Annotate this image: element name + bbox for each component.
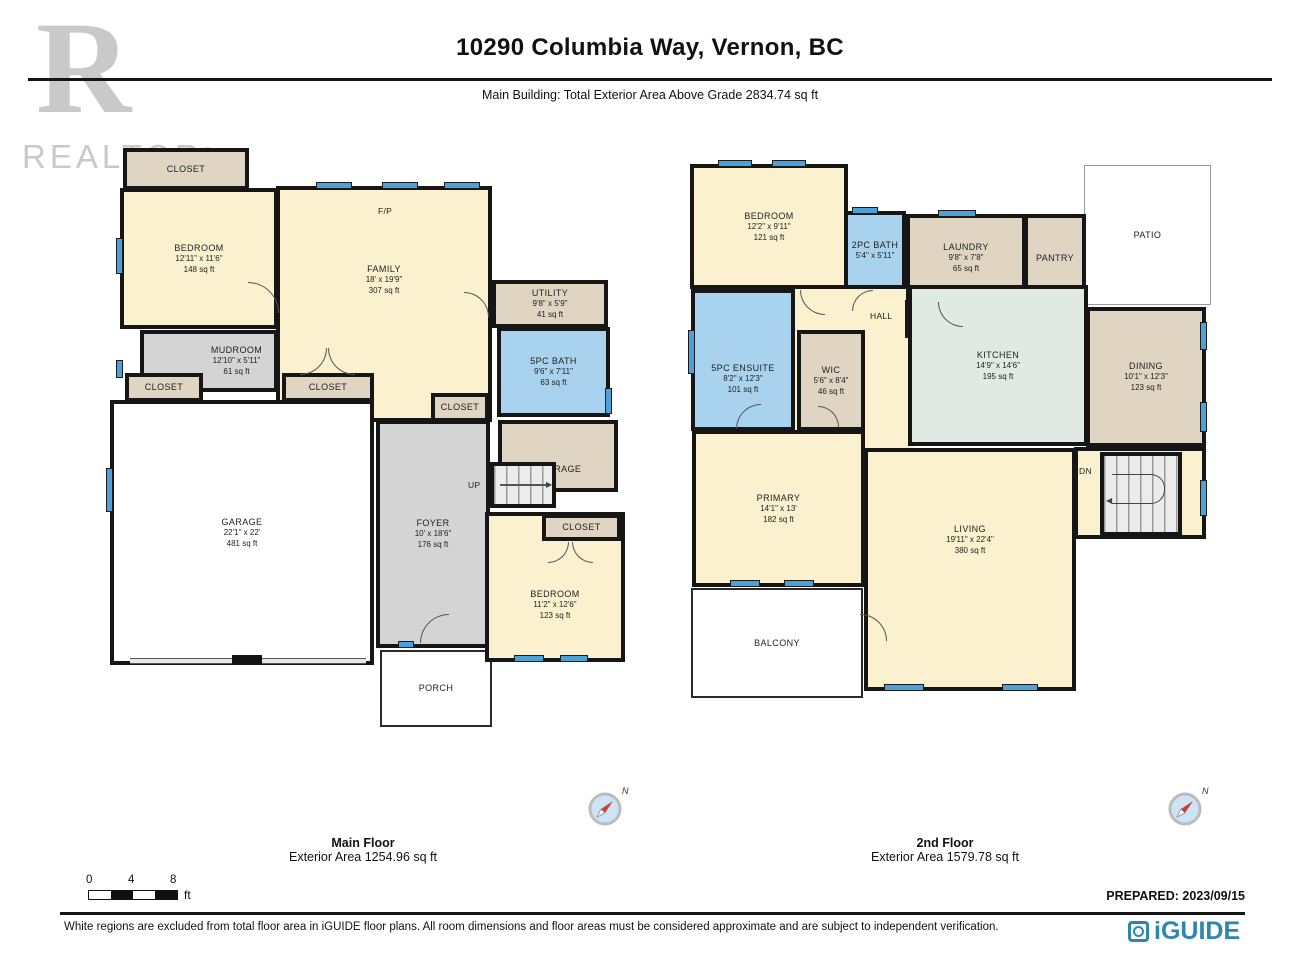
room-label: CLOSET	[167, 163, 205, 175]
room-label: CLOSET	[441, 401, 479, 413]
room-label: PRIMARY	[757, 492, 801, 504]
room-bedroom-2f: BEDROOM 12'2" x 9'11" 121 sq ft	[690, 164, 848, 289]
room-label: BALCONY	[754, 637, 800, 649]
window	[688, 330, 695, 374]
window	[718, 160, 752, 167]
room-label: BEDROOM	[174, 242, 223, 254]
room-label: 5PC ENSUITE	[711, 362, 774, 374]
window	[852, 207, 878, 214]
room-label: GARAGE	[222, 516, 263, 528]
main-floor-caption: Main Floor Exterior Area 1254.96 sq ft	[238, 836, 488, 864]
window	[1200, 322, 1207, 350]
window	[1002, 684, 1038, 691]
room-dims: 5'6" x 8'4"	[814, 376, 849, 387]
window	[444, 182, 480, 189]
scale-tick: 0	[86, 874, 92, 886]
room-area: 123 sq ft	[540, 611, 571, 622]
room-dims: 8'2" x 12'3"	[723, 374, 762, 385]
room-area: 121 sq ft	[754, 233, 785, 244]
scale-unit: ft	[184, 888, 191, 902]
room-label: PANTRY	[1036, 252, 1074, 264]
room-label: KITCHEN	[977, 349, 1019, 361]
room-dining: DINING 10'1" x 12'3" 123 sq ft	[1086, 307, 1206, 447]
room-area: 182 sq ft	[763, 515, 794, 526]
room-label: CLOSET	[145, 381, 183, 393]
room-label: DINING	[1129, 360, 1163, 372]
room-dims: 18' x 19'9"	[366, 275, 403, 286]
room-area: 307 sq ft	[369, 286, 400, 297]
garage-door-post	[232, 655, 262, 665]
page-subtitle: Main Building: Total Exterior Area Above…	[0, 88, 1300, 102]
camera-icon	[1128, 921, 1149, 942]
room-label: LAUNDRY	[943, 241, 989, 253]
room-living: LIVING 19'11" x 22'4" 380 sq ft	[864, 448, 1076, 691]
window	[938, 210, 976, 217]
room-area: 148 sq ft	[184, 265, 215, 276]
room-utility: UTILITY 9'8" x 5'9" 41 sq ft	[492, 280, 608, 328]
room-label: 2PC BATH	[852, 239, 899, 251]
room-5pc-bath: 5PC BATH 9'6" x 7'11" 63 sq ft	[497, 327, 610, 417]
room-area: 380 sq ft	[955, 546, 986, 557]
window	[784, 580, 814, 587]
stairs-direction-line	[500, 484, 546, 486]
stairs-arrow-icon: ◀	[1106, 496, 1112, 505]
stairs-switchback-line	[1112, 474, 1165, 504]
room-label: BEDROOM	[530, 588, 579, 600]
header-divider	[28, 78, 1272, 81]
fireplace-label: F/P	[378, 206, 392, 216]
window	[560, 655, 588, 662]
room-dims: 9'6" x 7'11"	[534, 367, 573, 378]
room-dims: 9'8" x 5'9"	[533, 299, 568, 310]
window	[116, 238, 123, 274]
room-area: 63 sq ft	[540, 378, 566, 389]
room-area: 195 sq ft	[983, 372, 1014, 383]
room-patio: PATIO	[1084, 165, 1211, 305]
footer-disclaimer: White regions are excluded from total fl…	[64, 921, 999, 933]
room-dims: 19'11" x 22'4"	[946, 535, 994, 546]
page-title: 10290 Columbia Way, Vernon, BC	[0, 34, 1300, 62]
room-closet-left: CLOSET	[125, 373, 203, 402]
room-closet-top: CLOSET	[123, 148, 249, 190]
window	[106, 468, 113, 512]
scale-bar: 0 4 8 ft	[88, 874, 188, 900]
room-label: FAMILY	[367, 263, 401, 275]
iguide-brand: iGUIDE	[1128, 917, 1240, 946]
room-dims: 11'2" x 12'6"	[533, 600, 576, 611]
compass-icon	[586, 790, 624, 828]
floor-name: 2nd Floor	[820, 836, 1070, 850]
floor-plan-page: R REALTOR® 10290 Columbia Way, Vernon, B…	[0, 0, 1300, 975]
room-label: BEDROOM	[744, 210, 793, 222]
room-primary: PRIMARY 14'1" x 13' 182 sq ft	[692, 430, 865, 587]
floor-area: Exterior Area 1579.78 sq ft	[820, 850, 1070, 864]
second-floor-caption: 2nd Floor Exterior Area 1579.78 sq ft	[820, 836, 1070, 864]
window	[116, 360, 123, 378]
room-label: MUDROOM	[211, 344, 262, 356]
room-label: LIVING	[954, 523, 986, 535]
room-closet-bedroom2: CLOSET	[542, 514, 621, 541]
iguide-logo-text: iGUIDE	[1154, 917, 1240, 946]
stairs-up-label: UP	[468, 480, 480, 490]
room-label: WIC	[822, 364, 841, 376]
scale-tick: 8	[170, 874, 176, 886]
room-label: CLOSET	[562, 521, 600, 533]
window	[1200, 480, 1207, 516]
room-dims: 12'10" x 5'11"	[213, 356, 261, 367]
window	[884, 684, 924, 691]
room-dims: 9'8" x 7'8"	[949, 253, 984, 264]
room-label: CLOSET	[309, 381, 347, 393]
window	[514, 655, 544, 662]
room-foyer: FOYER 10' x 18'6" 176 sq ft	[376, 420, 490, 648]
window	[772, 160, 806, 167]
scale-bar-segments	[88, 890, 178, 900]
room-area: 101 sq ft	[728, 385, 759, 396]
room-area: 61 sq ft	[223, 367, 249, 378]
stairs-down-label: DN	[1079, 466, 1092, 476]
hall-label: HALL	[870, 311, 892, 321]
compass-icon	[1166, 790, 1204, 828]
room-dims: 14'1" x 13'	[760, 504, 797, 515]
room-area: 41 sq ft	[537, 310, 563, 321]
scale-tick: 4	[128, 874, 134, 886]
footer-divider	[60, 912, 1245, 915]
window	[1200, 402, 1207, 432]
room-label: PATIO	[1134, 229, 1162, 241]
room-closet-foyer: CLOSET	[431, 393, 489, 422]
room-dims: 10'1" x 12'3"	[1124, 372, 1168, 383]
floor-name: Main Floor	[238, 836, 488, 850]
realtor-logo-icon: R	[36, 2, 131, 134]
room-label: PORCH	[419, 682, 454, 694]
room-dims: 12'11" x 11'6"	[175, 254, 222, 265]
room-balcony: BALCONY	[691, 588, 863, 698]
room-dims: 14'9" x 14'6"	[976, 361, 1020, 372]
room-dims: 22'1" x 22'	[224, 528, 261, 539]
north-label: N	[1202, 786, 1209, 796]
room-area: 481 sq ft	[227, 539, 258, 550]
room-dims: 12'2" x 9'11"	[747, 222, 790, 233]
window	[730, 580, 760, 587]
window	[605, 388, 612, 414]
scale-ticks: 0 4 8	[88, 874, 188, 888]
room-dims: 5'4" x 5'11"	[856, 251, 895, 262]
room-area: 176 sq ft	[418, 540, 449, 551]
window	[382, 182, 418, 189]
prepared-date: PREPARED: 2023/09/15	[1106, 889, 1245, 903]
floor-area: Exterior Area 1254.96 sq ft	[238, 850, 488, 864]
room-area: 46 sq ft	[818, 387, 844, 398]
room-dims: 10' x 18'6"	[415, 529, 452, 540]
room-garage: GARAGE 22'1" x 22' 481 sq ft	[110, 400, 374, 665]
room-closet-mid: CLOSET	[282, 373, 374, 402]
stairs-arrow-icon: ▶	[546, 480, 552, 489]
window	[316, 182, 352, 189]
room-label: UTILITY	[532, 287, 568, 299]
room-area: 65 sq ft	[953, 264, 979, 275]
window	[398, 641, 414, 648]
room-label: FOYER	[416, 517, 449, 529]
north-label: N	[622, 786, 629, 796]
room-porch: PORCH	[380, 650, 492, 727]
room-kitchen: KITCHEN 14'9" x 14'6" 195 sq ft	[908, 285, 1088, 446]
room-label: 5PC BATH	[530, 355, 577, 367]
room-area: 123 sq ft	[1131, 383, 1162, 394]
room-2pc-bath: 2PC BATH 5'4" x 5'11"	[844, 211, 906, 289]
